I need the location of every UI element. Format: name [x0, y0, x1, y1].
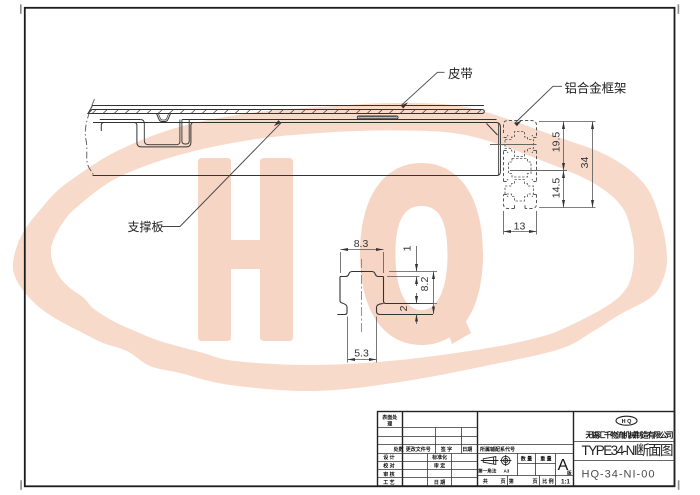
svg-text:5.3: 5.3 — [354, 348, 369, 360]
svg-text:皮带: 皮带 — [448, 67, 473, 81]
svg-text:13: 13 — [514, 221, 526, 233]
svg-text:34: 34 — [579, 157, 591, 169]
svg-text:H Q: H Q — [622, 419, 633, 425]
svg-text:8.3: 8.3 — [354, 238, 369, 250]
svg-text:工 艺: 工 艺 — [383, 479, 394, 486]
svg-text:第: 第 — [509, 478, 514, 485]
svg-text:审 定: 审 定 — [434, 463, 445, 470]
svg-text:更改文件号: 更改文件号 — [406, 446, 431, 453]
svg-text:14.5: 14.5 — [551, 178, 563, 199]
svg-text:无锡汇千物流机械制造有限公司: 无锡汇千物流机械制造有限公司 — [585, 430, 674, 440]
svg-text:共: 共 — [483, 478, 488, 485]
svg-text:处数: 处数 — [393, 446, 405, 453]
svg-text:支撑板: 支撑板 — [128, 219, 164, 234]
svg-text:签 字: 签 字 — [440, 446, 452, 453]
svg-text:19.5: 19.5 — [551, 132, 563, 153]
svg-text:1: 1 — [402, 245, 414, 251]
svg-text:表面处: 表面处 — [381, 414, 398, 421]
svg-text:重 量: 重 量 — [540, 456, 551, 463]
svg-text:页: 页 — [532, 478, 537, 485]
svg-text:标准化: 标准化 — [431, 454, 447, 461]
svg-text:2: 2 — [398, 305, 410, 311]
svg-text:TYPE34-NI断面图: TYPE34-NI断面图 — [582, 443, 674, 458]
svg-text:所属辅配系代号: 所属辅配系代号 — [480, 446, 515, 453]
svg-text:第一角法: 第一角法 — [478, 467, 497, 474]
svg-text:理: 理 — [387, 420, 392, 427]
svg-text:1:1: 1:1 — [561, 479, 570, 485]
svg-text:日期: 日期 — [462, 446, 472, 453]
svg-text:8.2: 8.2 — [419, 277, 431, 292]
svg-text:A3: A3 — [503, 468, 509, 473]
svg-text:HQ-34-NI-00: HQ-34-NI-00 — [582, 469, 656, 481]
svg-text:铝合金框架: 铝合金框架 — [565, 81, 627, 96]
svg-text:数 量: 数 量 — [521, 456, 532, 463]
svg-text:日 期: 日 期 — [434, 479, 445, 486]
svg-text:校 对: 校 对 — [383, 463, 394, 470]
svg-text:审 核: 审 核 — [383, 471, 394, 478]
svg-text:A: A — [558, 457, 569, 474]
svg-text:页: 页 — [500, 478, 505, 485]
svg-text:设 计: 设 计 — [383, 454, 394, 461]
svg-text:比 例: 比 例 — [542, 478, 553, 485]
